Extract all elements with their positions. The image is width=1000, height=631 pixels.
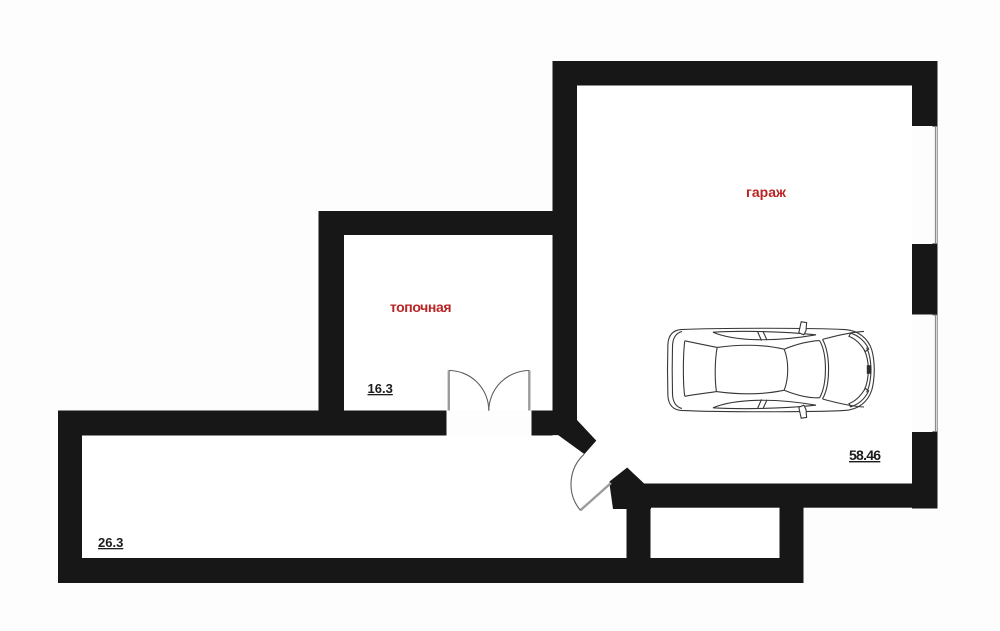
svg-text:гараж: гараж (746, 184, 787, 200)
svg-text:топочная: топочная (390, 299, 451, 315)
svg-text:26.3: 26.3 (98, 535, 123, 550)
svg-text:58.46: 58.46 (849, 447, 881, 463)
svg-text:16.3: 16.3 (368, 381, 393, 396)
